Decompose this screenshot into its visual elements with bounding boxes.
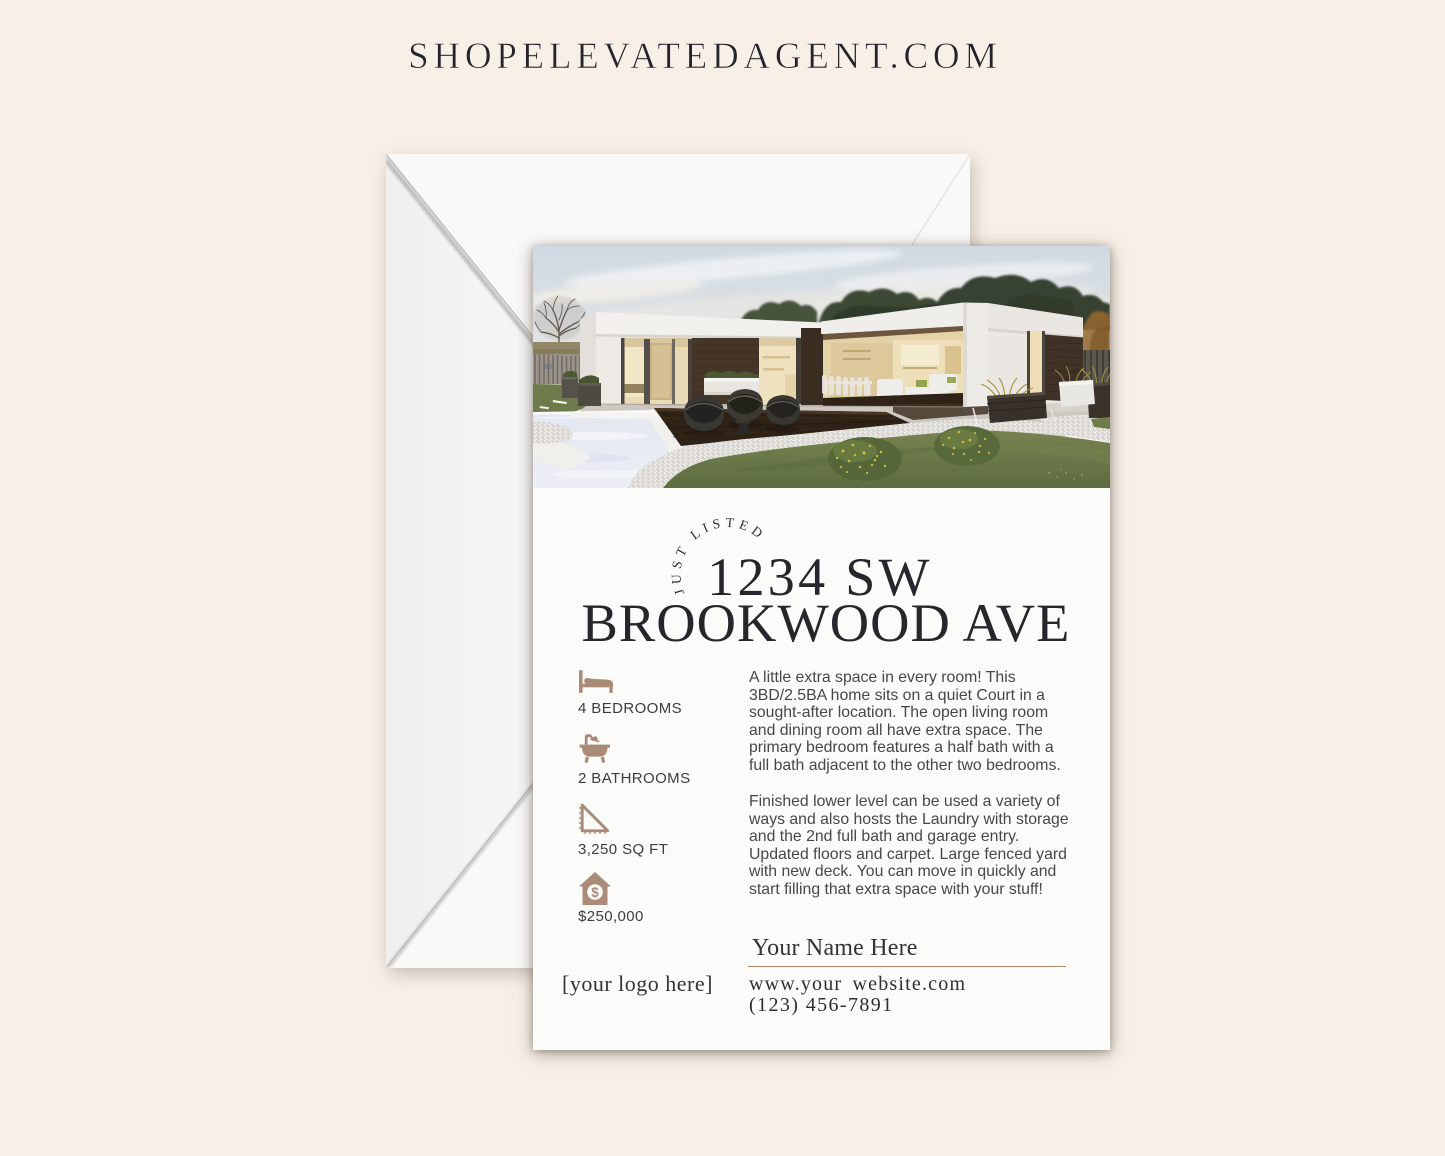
svg-text:$: $	[591, 885, 599, 900]
